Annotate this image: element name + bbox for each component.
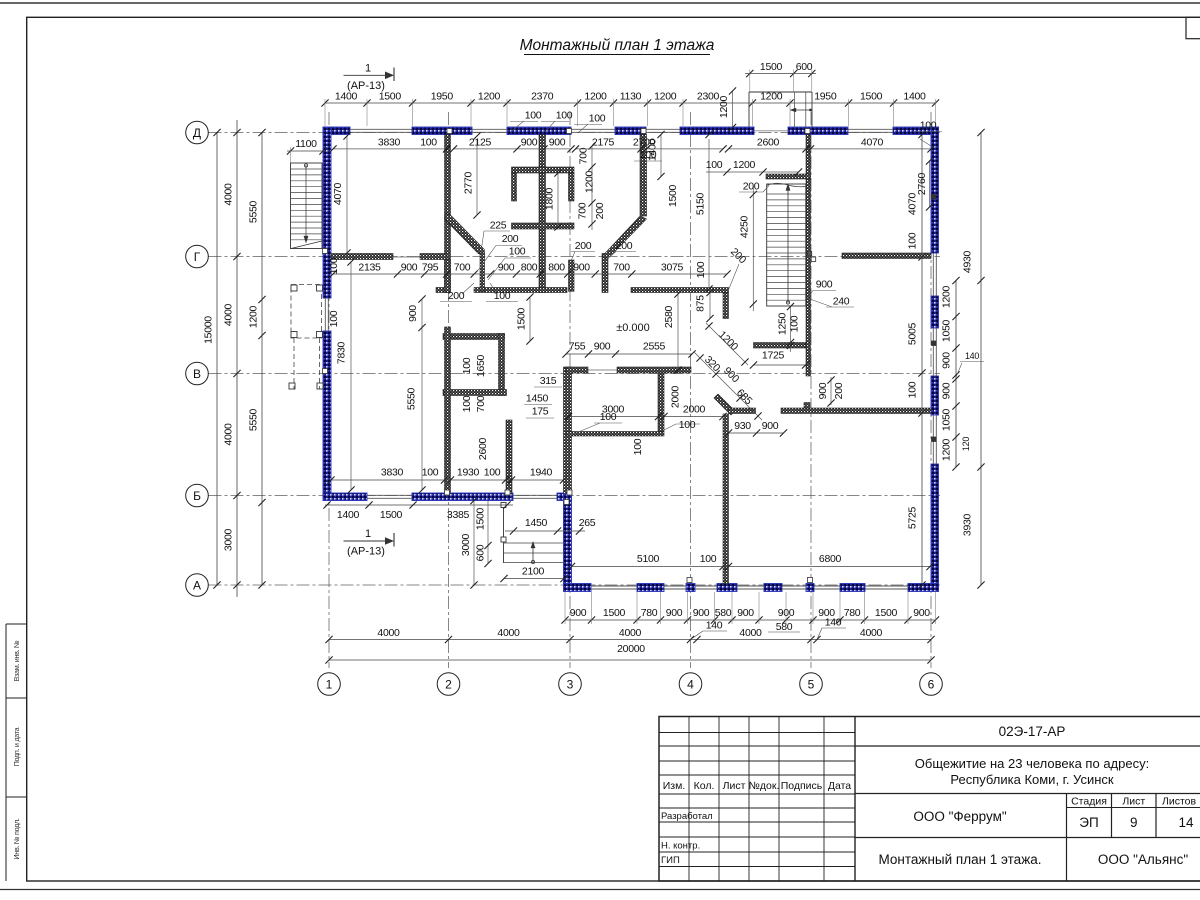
svg-text:900: 900 <box>549 137 566 149</box>
svg-text:5550: 5550 <box>406 387 418 410</box>
svg-text:900: 900 <box>594 341 611 353</box>
svg-text:1200: 1200 <box>718 95 730 118</box>
svg-text:100: 100 <box>789 315 801 332</box>
svg-text:Лист: Лист <box>723 780 746 792</box>
svg-text:4000: 4000 <box>223 303 235 326</box>
svg-text:1800: 1800 <box>544 187 556 210</box>
svg-text:3075: 3075 <box>661 262 684 274</box>
svg-text:100: 100 <box>632 438 644 455</box>
svg-text:100: 100 <box>640 149 657 161</box>
svg-text:200: 200 <box>594 202 606 219</box>
svg-text:100: 100 <box>422 467 439 479</box>
svg-text:Дата: Дата <box>828 780 851 792</box>
svg-text:700: 700 <box>454 262 471 274</box>
svg-text:Монтажный план 1 этажа: Монтажный план 1 этажа <box>520 37 715 54</box>
svg-text:2000: 2000 <box>670 385 682 408</box>
svg-text:20000: 20000 <box>617 643 645 655</box>
svg-text:2760: 2760 <box>916 172 928 195</box>
svg-text:3: 3 <box>567 677 574 691</box>
svg-text:(АР-13): (АР-13) <box>347 80 385 92</box>
svg-text:1200: 1200 <box>941 438 953 461</box>
svg-text:1400: 1400 <box>337 509 360 521</box>
svg-text:100: 100 <box>556 110 573 122</box>
svg-text:800: 800 <box>548 262 565 274</box>
svg-text:1200: 1200 <box>478 91 501 103</box>
svg-text:900: 900 <box>573 262 590 274</box>
svg-text:4250: 4250 <box>739 215 751 238</box>
svg-text:1250: 1250 <box>777 312 789 335</box>
svg-text:Стадия: Стадия <box>1071 796 1107 808</box>
svg-text:1200: 1200 <box>654 91 677 103</box>
svg-text:4930: 4930 <box>962 250 974 273</box>
svg-text:930: 930 <box>734 420 751 432</box>
svg-text:200: 200 <box>616 240 633 252</box>
svg-text:Инв. № подл.: Инв. № подл. <box>12 818 21 859</box>
svg-text:ЭП: ЭП <box>1079 815 1098 830</box>
svg-text:900: 900 <box>693 607 710 619</box>
svg-text:100: 100 <box>494 290 511 302</box>
svg-text:1725: 1725 <box>762 350 785 362</box>
svg-text:Листов: Листов <box>1162 796 1197 808</box>
svg-text:1200: 1200 <box>733 159 756 171</box>
svg-text:4000: 4000 <box>619 627 642 639</box>
svg-text:1950: 1950 <box>431 91 454 103</box>
svg-text:100: 100 <box>420 137 437 149</box>
svg-text:3385: 3385 <box>447 509 470 521</box>
svg-text:900: 900 <box>401 262 418 274</box>
svg-text:4000: 4000 <box>223 183 235 206</box>
svg-text:3830: 3830 <box>378 137 401 149</box>
svg-text:2100: 2100 <box>522 566 545 578</box>
svg-text:600: 600 <box>796 61 813 73</box>
svg-text:(АР-13): (АР-13) <box>347 546 385 558</box>
svg-text:1450: 1450 <box>525 517 548 529</box>
svg-text:1200: 1200 <box>941 285 953 308</box>
svg-text:1500: 1500 <box>875 607 898 619</box>
svg-text:6: 6 <box>928 677 935 691</box>
svg-text:1130: 1130 <box>620 91 642 103</box>
svg-text:Республика Коми, г. Усинск: Республика Коми, г. Усинск <box>950 772 1113 787</box>
svg-text:ООО "Альянс": ООО "Альянс" <box>1098 852 1188 867</box>
svg-text:4: 4 <box>687 677 694 691</box>
svg-text:5550: 5550 <box>248 408 260 431</box>
svg-text:900: 900 <box>817 382 829 399</box>
svg-text:900: 900 <box>737 607 754 619</box>
svg-text:1200: 1200 <box>584 170 596 193</box>
svg-text:700: 700 <box>577 202 589 219</box>
svg-text:Монтажный план 1 этажа.: Монтажный план 1 этажа. <box>879 852 1042 867</box>
svg-text:800: 800 <box>521 262 538 274</box>
svg-text:200: 200 <box>575 240 592 252</box>
svg-text:15000: 15000 <box>203 316 215 344</box>
svg-text:140: 140 <box>825 617 842 629</box>
svg-text:1500: 1500 <box>760 61 783 73</box>
svg-text:2: 2 <box>445 677 452 691</box>
svg-text:№док.: №док. <box>749 780 780 792</box>
svg-text:1200: 1200 <box>584 91 607 103</box>
svg-text:Общежитие на 23 человека по ад: Общежитие на 23 человека по адресу: <box>915 756 1149 771</box>
svg-text:4000: 4000 <box>739 627 762 639</box>
svg-text:1500: 1500 <box>603 607 626 619</box>
svg-text:200: 200 <box>448 290 465 302</box>
svg-text:4000: 4000 <box>223 423 235 446</box>
svg-text:200: 200 <box>502 233 519 245</box>
svg-text:100: 100 <box>920 120 937 132</box>
svg-text:900: 900 <box>913 607 930 619</box>
svg-text:Кол.: Кол. <box>694 780 715 792</box>
svg-text:1930: 1930 <box>457 467 480 479</box>
svg-text:Изм.: Изм. <box>663 780 686 792</box>
svg-text:795: 795 <box>422 262 439 274</box>
svg-text:5150: 5150 <box>695 192 707 215</box>
svg-text:780: 780 <box>844 607 861 619</box>
svg-text:±0.000: ±0.000 <box>616 322 650 334</box>
svg-text:2000: 2000 <box>683 404 706 416</box>
svg-text:900: 900 <box>407 305 419 322</box>
svg-text:900: 900 <box>941 382 953 399</box>
svg-text:1: 1 <box>365 528 371 540</box>
svg-text:2700: 2700 <box>633 137 656 149</box>
svg-text:900: 900 <box>666 607 683 619</box>
svg-text:3930: 3930 <box>962 513 974 536</box>
svg-text:100: 100 <box>484 467 501 479</box>
svg-text:265: 265 <box>579 517 596 529</box>
svg-text:900: 900 <box>570 607 587 619</box>
svg-text:6800: 6800 <box>819 553 842 565</box>
svg-text:240: 240 <box>833 296 850 308</box>
svg-text:5005: 5005 <box>907 322 919 345</box>
svg-text:ГИП: ГИП <box>661 855 680 866</box>
svg-text:900: 900 <box>816 279 833 291</box>
svg-text:1940: 1940 <box>530 467 553 479</box>
svg-text:Подпись: Подпись <box>781 780 823 792</box>
svg-text:1: 1 <box>326 677 333 691</box>
svg-text:900: 900 <box>521 137 538 149</box>
svg-text:4000: 4000 <box>860 627 883 639</box>
svg-text:1950: 1950 <box>814 91 837 103</box>
svg-text:4070: 4070 <box>861 137 884 149</box>
svg-text:900: 900 <box>762 420 779 432</box>
svg-text:7830: 7830 <box>336 341 348 364</box>
svg-text:1200: 1200 <box>248 305 260 328</box>
svg-text:315: 315 <box>540 375 557 387</box>
svg-text:02Э-17-АР: 02Э-17-АР <box>999 724 1066 739</box>
svg-text:2555: 2555 <box>643 341 666 353</box>
svg-text:700: 700 <box>613 262 630 274</box>
svg-text:ООО "Феррум": ООО "Феррум" <box>913 809 1007 824</box>
svg-text:2175: 2175 <box>592 137 615 149</box>
svg-text:1500: 1500 <box>667 184 679 207</box>
svg-text:Подп. и дата: Подп. и дата <box>12 727 21 766</box>
svg-text:5100: 5100 <box>637 553 660 565</box>
svg-text:1100: 1100 <box>295 138 317 150</box>
svg-text:100: 100 <box>907 381 919 398</box>
svg-text:2135: 2135 <box>358 262 381 274</box>
svg-text:1500: 1500 <box>379 91 402 103</box>
svg-text:1050: 1050 <box>941 319 953 342</box>
svg-text:1200: 1200 <box>760 91 783 103</box>
svg-text:1500: 1500 <box>475 507 487 530</box>
svg-text:3000: 3000 <box>460 533 472 556</box>
svg-text:5725: 5725 <box>907 506 919 529</box>
svg-text:3830: 3830 <box>381 467 404 479</box>
svg-text:600: 600 <box>475 544 487 561</box>
svg-text:2300: 2300 <box>697 91 720 103</box>
svg-text:2125: 2125 <box>469 137 492 149</box>
svg-text:200: 200 <box>743 181 760 193</box>
svg-text:100: 100 <box>461 357 473 374</box>
svg-text:5550: 5550 <box>248 200 260 223</box>
svg-text:Лист: Лист <box>1122 796 1145 808</box>
svg-text:Д: Д <box>193 126 201 140</box>
svg-text:1400: 1400 <box>903 91 926 103</box>
svg-text:175: 175 <box>532 406 549 418</box>
svg-text:100: 100 <box>509 246 526 258</box>
svg-text:100: 100 <box>907 232 919 249</box>
svg-text:100: 100 <box>706 159 723 171</box>
svg-text:900: 900 <box>778 607 795 619</box>
svg-text:2600: 2600 <box>757 137 780 149</box>
svg-text:Взам. инв. №: Взам. инв. № <box>12 640 21 682</box>
svg-text:1400: 1400 <box>335 91 358 103</box>
svg-text:1500: 1500 <box>516 307 528 330</box>
svg-text:В: В <box>193 367 201 381</box>
svg-text:780: 780 <box>641 607 658 619</box>
svg-text:1650: 1650 <box>475 354 487 377</box>
svg-text:14: 14 <box>1178 815 1194 830</box>
svg-text:2770: 2770 <box>463 171 475 194</box>
svg-text:875: 875 <box>695 295 707 312</box>
svg-text:100: 100 <box>328 257 340 274</box>
svg-text:2580: 2580 <box>663 305 675 328</box>
svg-text:А: А <box>193 578 201 592</box>
svg-text:100: 100 <box>589 113 606 125</box>
svg-text:1500: 1500 <box>380 509 403 521</box>
svg-text:9: 9 <box>1130 815 1138 830</box>
svg-text:120: 120 <box>961 437 971 451</box>
svg-text:Г: Г <box>194 250 201 264</box>
svg-text:1450: 1450 <box>526 393 549 405</box>
svg-text:100: 100 <box>461 395 473 412</box>
svg-text:100: 100 <box>525 110 542 122</box>
svg-text:225: 225 <box>490 220 507 232</box>
svg-text:580: 580 <box>776 621 793 633</box>
svg-text:140: 140 <box>706 620 723 632</box>
svg-text:100: 100 <box>700 553 717 565</box>
svg-text:1: 1 <box>365 63 371 75</box>
svg-text:2370: 2370 <box>531 91 554 103</box>
svg-text:1500: 1500 <box>860 91 883 103</box>
svg-text:700: 700 <box>578 147 590 164</box>
svg-text:700: 700 <box>475 395 487 412</box>
svg-text:Б: Б <box>193 489 201 503</box>
svg-text:2600: 2600 <box>477 437 489 460</box>
svg-text:900: 900 <box>941 352 953 369</box>
svg-text:5: 5 <box>808 677 815 691</box>
svg-text:100: 100 <box>695 261 707 278</box>
svg-text:4000: 4000 <box>377 627 400 639</box>
svg-text:140: 140 <box>965 351 979 361</box>
svg-text:4070: 4070 <box>332 182 344 205</box>
svg-text:1050: 1050 <box>941 408 953 431</box>
svg-text:100: 100 <box>600 411 617 423</box>
svg-text:3000: 3000 <box>223 528 235 551</box>
svg-text:900: 900 <box>498 262 515 274</box>
svg-text:200: 200 <box>833 382 845 399</box>
svg-text:100: 100 <box>679 419 696 431</box>
svg-text:100: 100 <box>328 310 340 327</box>
svg-text:580: 580 <box>715 607 732 619</box>
svg-text:Н. контр.: Н. контр. <box>661 841 700 852</box>
svg-text:4000: 4000 <box>497 627 520 639</box>
svg-text:755: 755 <box>569 341 586 353</box>
svg-text:Разработал: Разработал <box>661 811 713 822</box>
